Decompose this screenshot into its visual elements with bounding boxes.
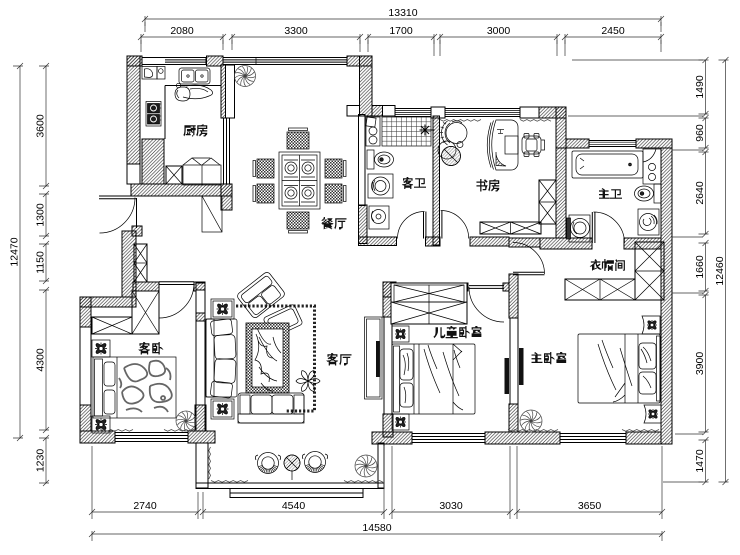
svg-text:1230: 1230 — [35, 449, 47, 473]
svg-text:3000: 3000 — [487, 25, 511, 37]
svg-text:3650: 3650 — [578, 500, 602, 512]
svg-text:1470: 1470 — [694, 449, 706, 473]
svg-text:12460: 12460 — [714, 256, 726, 285]
svg-text:12470: 12470 — [9, 237, 21, 266]
svg-text:1300: 1300 — [35, 203, 47, 227]
svg-text:3030: 3030 — [439, 500, 463, 512]
svg-text:4540: 4540 — [282, 500, 306, 512]
svg-text:960: 960 — [694, 124, 706, 142]
svg-text:1660: 1660 — [694, 255, 706, 279]
svg-text:1150: 1150 — [35, 251, 47, 274]
svg-text:14580: 14580 — [362, 522, 391, 534]
svg-text:1700: 1700 — [389, 25, 413, 37]
svg-text:3300: 3300 — [284, 25, 308, 37]
svg-text:4300: 4300 — [35, 348, 47, 372]
svg-text:2740: 2740 — [133, 500, 157, 512]
svg-text:3600: 3600 — [35, 114, 47, 138]
svg-text:13310: 13310 — [388, 7, 417, 19]
svg-text:2080: 2080 — [170, 25, 194, 37]
svg-text:2640: 2640 — [694, 181, 706, 205]
svg-text:3900: 3900 — [694, 352, 706, 376]
svg-text:1490: 1490 — [694, 75, 706, 99]
svg-text:2450: 2450 — [601, 25, 625, 37]
